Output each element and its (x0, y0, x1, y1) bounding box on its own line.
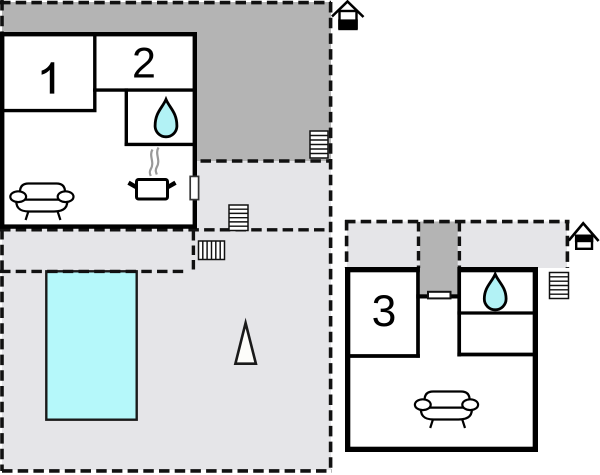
svg-text:3: 3 (372, 287, 397, 336)
svg-text:2: 2 (132, 39, 156, 87)
